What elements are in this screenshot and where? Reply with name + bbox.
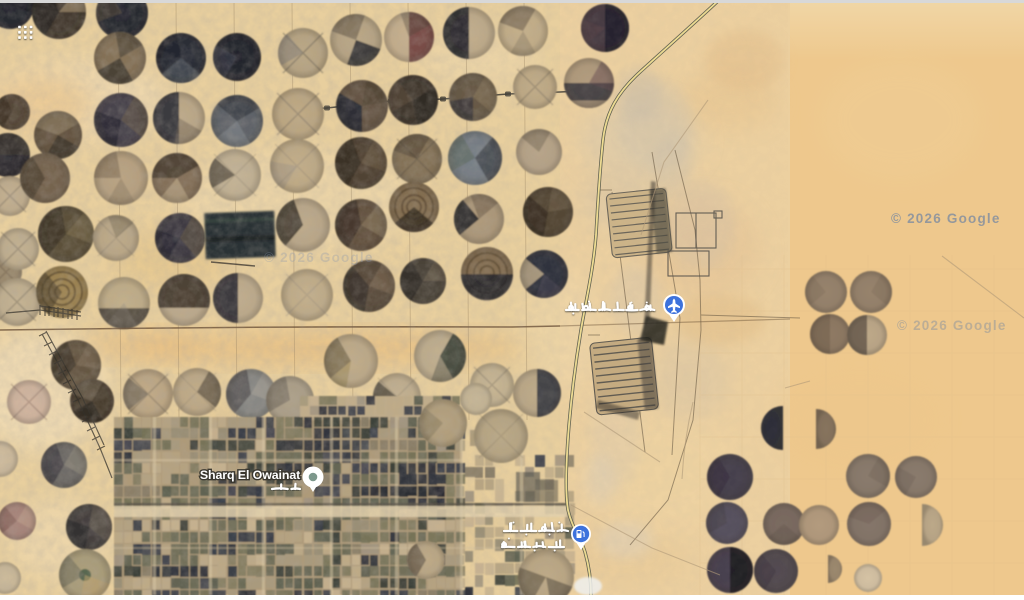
- svg-text:© 2026 Google: © 2026 Google: [891, 211, 1001, 226]
- svg-text:Sharq El Owainat: Sharq El Owainat: [200, 468, 300, 482]
- svg-text:© 2026 Google: © 2026 Google: [264, 250, 374, 265]
- svg-text:© 2026 Google: © 2026 Google: [897, 318, 1007, 333]
